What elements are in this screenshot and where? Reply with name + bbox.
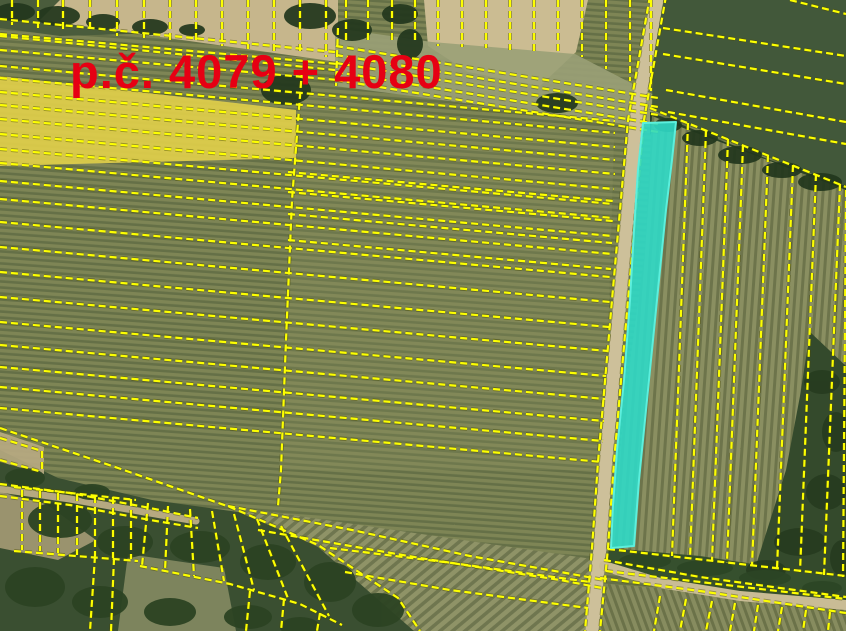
field-middle-tint [279,95,614,470]
parcel-number-label: p.č. 4079 + 4080 [70,45,443,98]
cadastral-aerial-map: p.č. 4079 + 4080 [0,0,846,631]
map-canvas: p.č. 4079 + 4080 [0,0,846,631]
